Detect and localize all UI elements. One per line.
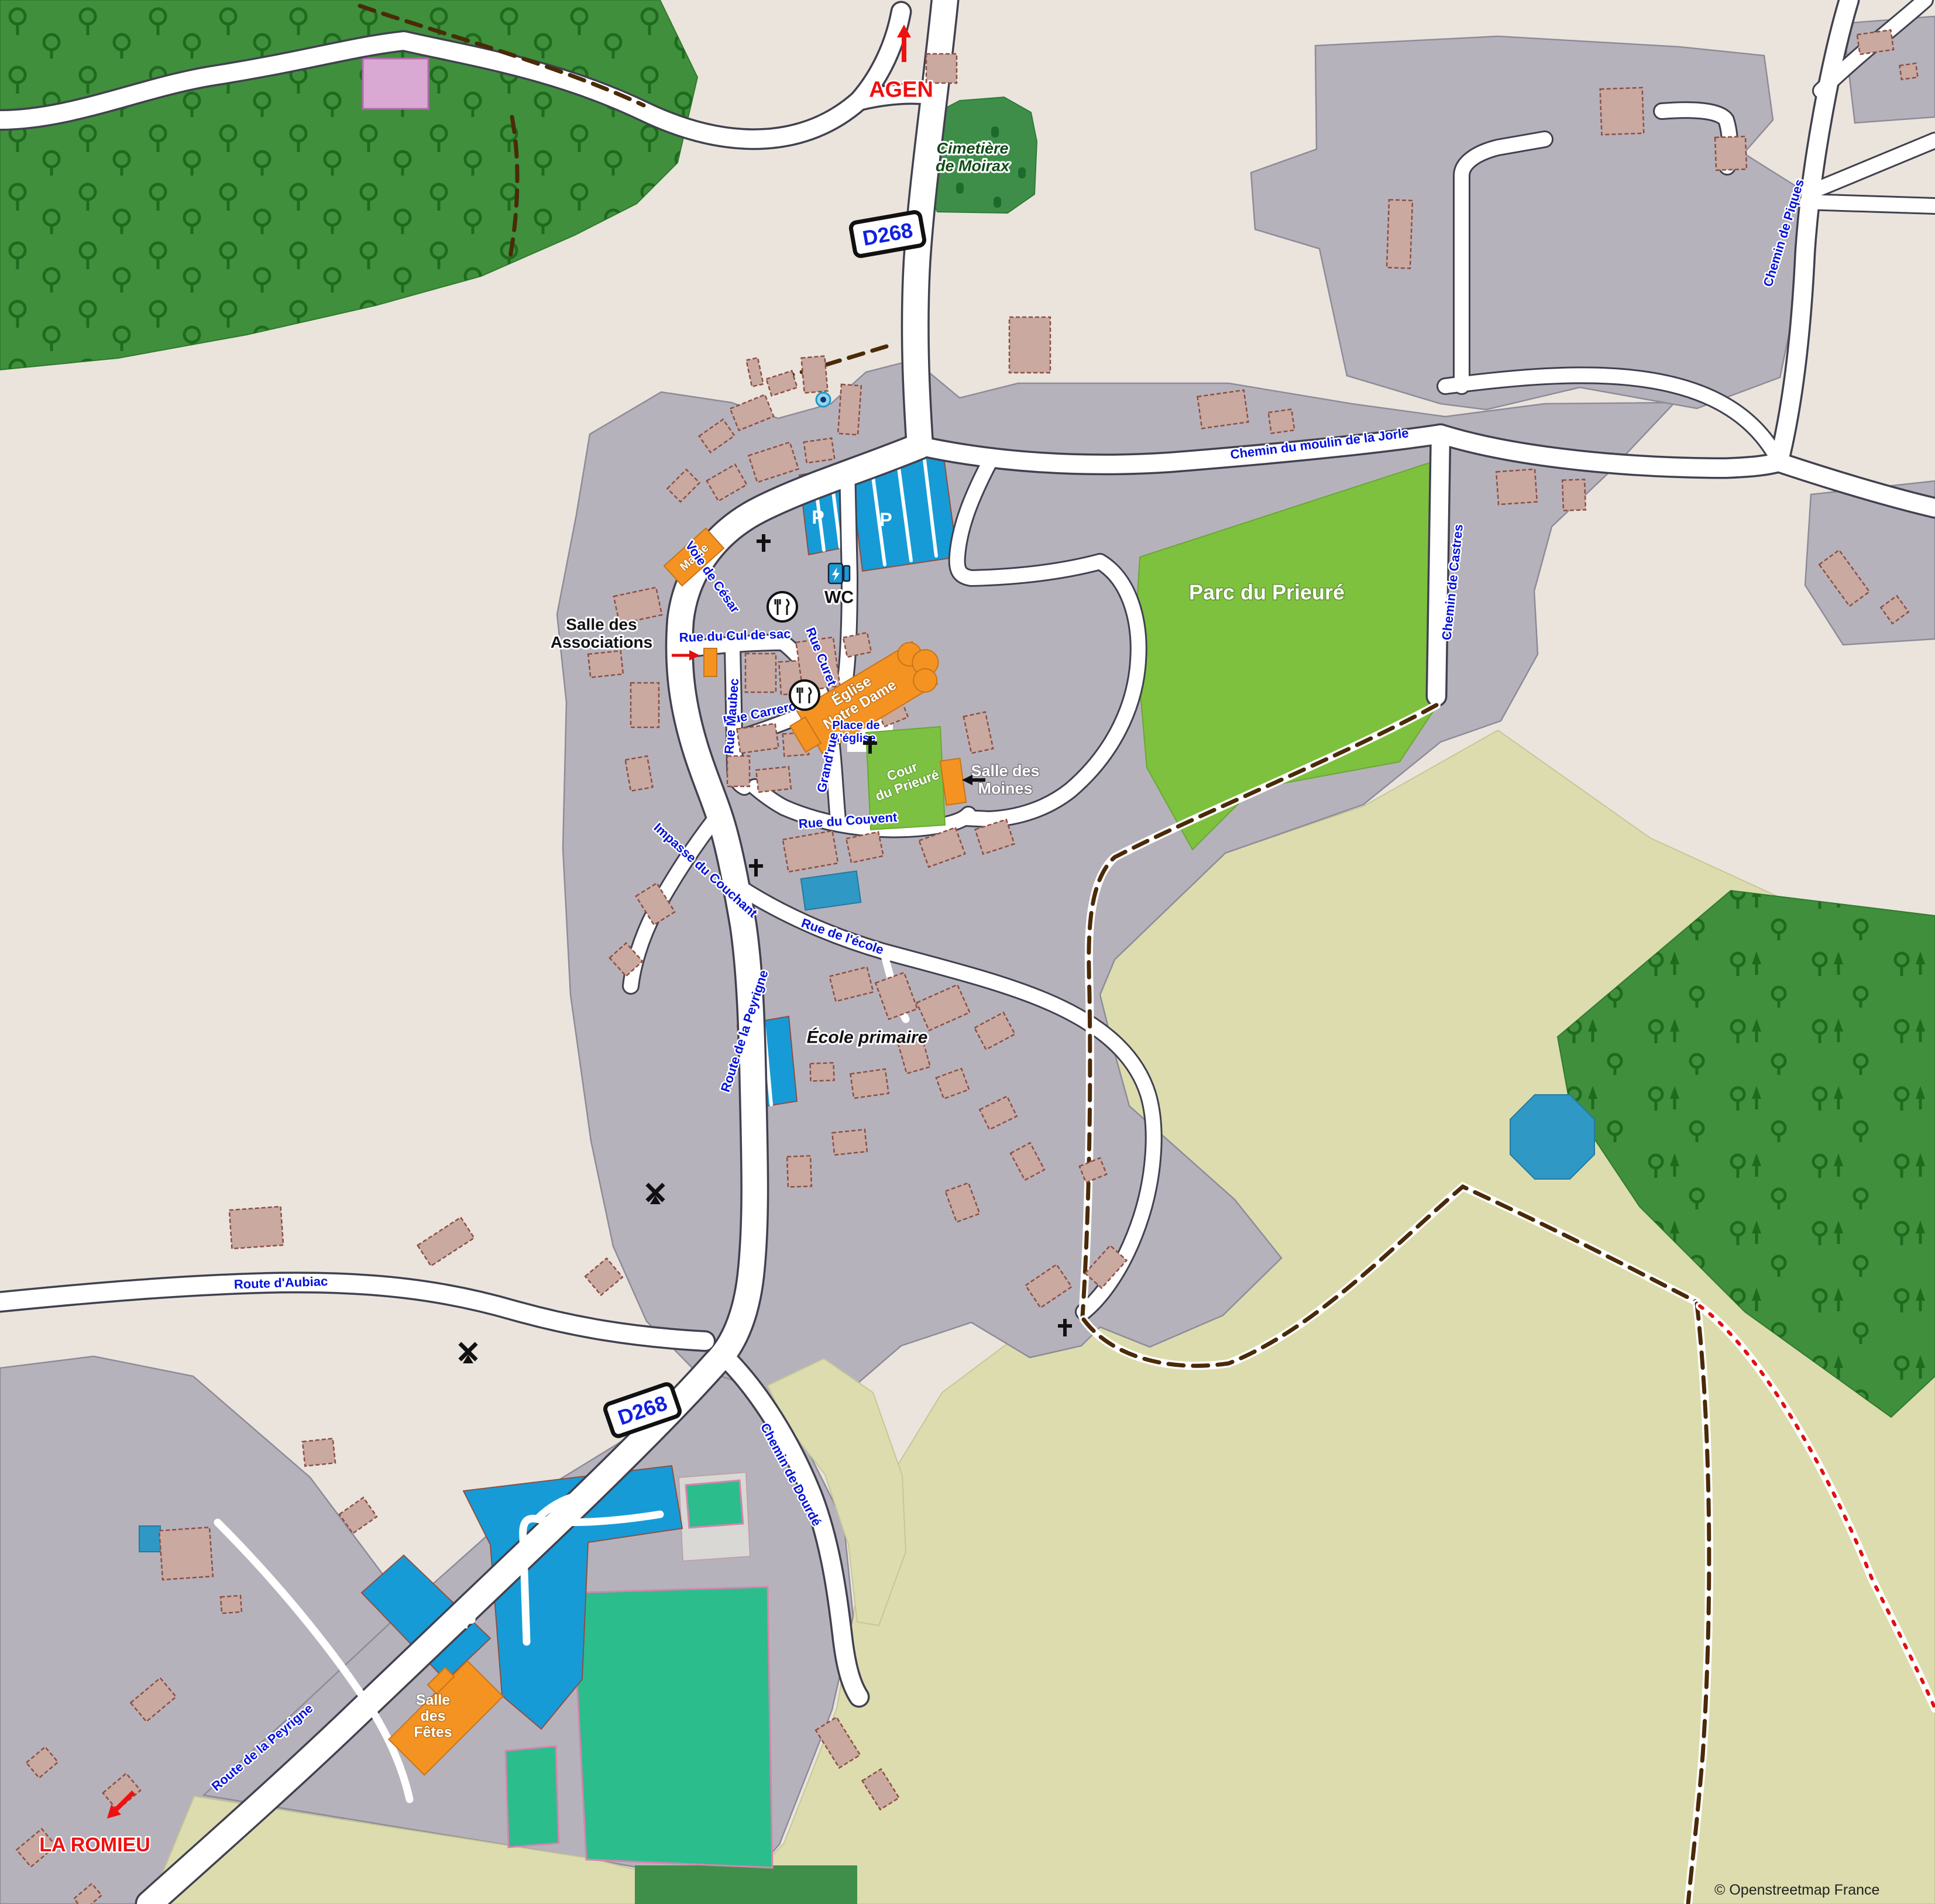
sports-field-large: [572, 1587, 772, 1868]
label-wc: WC: [824, 588, 854, 607]
restaurant-icon-north: [768, 592, 797, 621]
attribution: © Openstreetmap France: [1714, 1882, 1879, 1898]
label-ecole-primaire: École primaire: [807, 1027, 928, 1047]
charging-station-icon: [829, 563, 850, 583]
hedge-bottom: [635, 1865, 857, 1904]
pond-octagon: [1510, 1095, 1594, 1179]
svg-text:P: P: [812, 507, 824, 528]
label-agen: AGEN: [869, 77, 933, 102]
svg-text:AGEN: AGEN: [869, 77, 933, 102]
svg-text:École primaire: École primaire: [807, 1027, 928, 1047]
salle-associations-building: [704, 648, 717, 676]
fountain-icon: [816, 393, 830, 407]
svg-text:Cimetièrede Moirax: Cimetièrede Moirax: [936, 140, 1010, 175]
svg-text:P: P: [463, 1611, 476, 1633]
label-cimetiere: Cimetièrede Moirax: [936, 140, 1010, 175]
forest-building: [363, 59, 428, 109]
sports-field-small-1: [686, 1480, 743, 1528]
label-la-romieu: LA ROMIEU: [39, 1834, 150, 1856]
label-parc-du-prieure: Parc du Prieuré: [1189, 580, 1345, 604]
restaurant-icon-south: [790, 681, 819, 710]
label-parking-p2: P: [879, 509, 892, 530]
svg-text:WC: WC: [824, 588, 854, 607]
svg-text:LA ROMIEU: LA ROMIEU: [39, 1834, 150, 1856]
svg-text:P: P: [879, 509, 892, 530]
svg-text:Parc du Prieuré: Parc du Prieuré: [1189, 580, 1345, 604]
sports-field-small-2: [506, 1746, 559, 1847]
label-parking-p4: P: [463, 1611, 476, 1633]
label-parking-p1: P: [812, 507, 824, 528]
map-canvas: AGENLA ROMIEUCimetièrede MoiraxParc du P…: [0, 0, 1935, 1904]
moirax-map: AGENLA ROMIEUCimetièrede MoiraxParc du P…: [0, 0, 1935, 1904]
pond-west: [139, 1526, 160, 1552]
